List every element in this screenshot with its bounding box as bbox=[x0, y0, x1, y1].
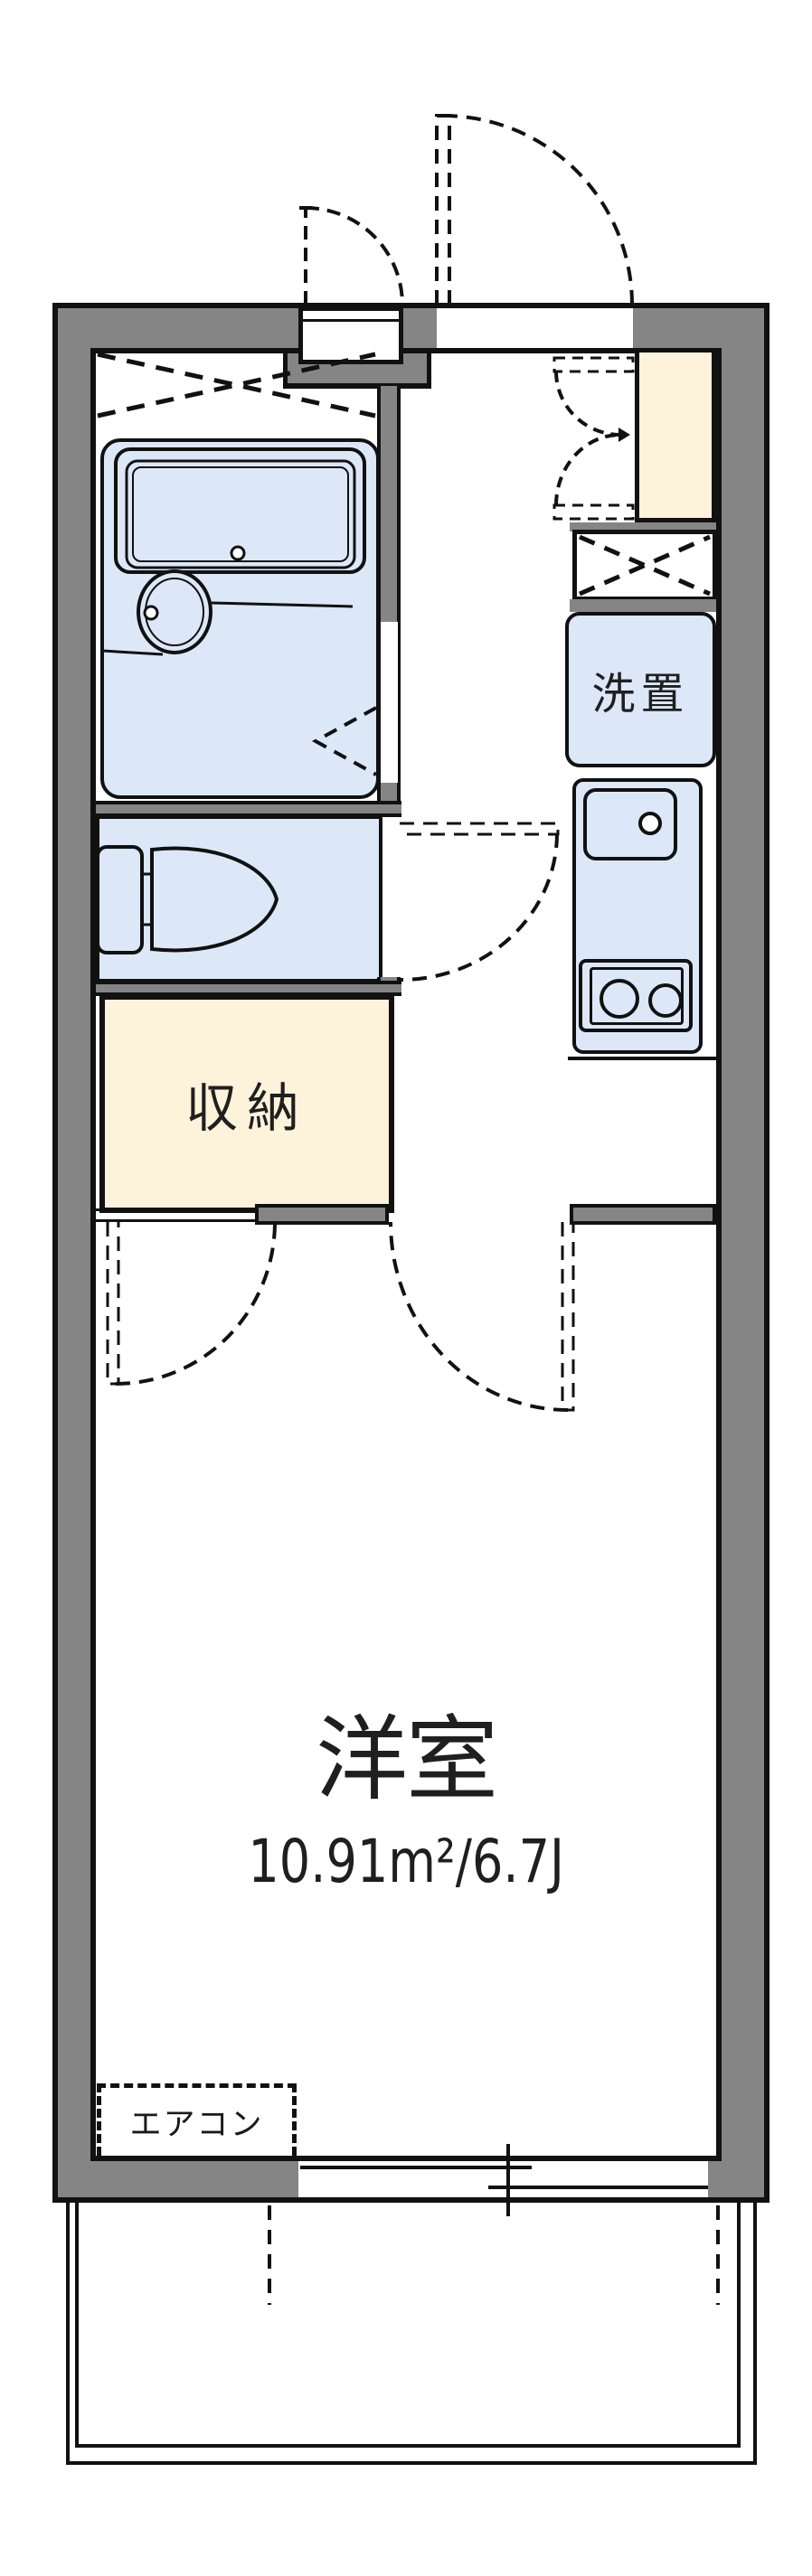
toilet-tank bbox=[98, 847, 142, 953]
plan-symbols-layer bbox=[0, 0, 812, 2576]
basin-faucet bbox=[145, 606, 157, 619]
main-room-door-right bbox=[391, 1222, 573, 1410]
bathroom-x-mark bbox=[98, 354, 375, 416]
entry-door-arc bbox=[437, 116, 632, 305]
main-room-door-left bbox=[108, 1222, 275, 1384]
toilet-bowl bbox=[152, 849, 277, 951]
fridge-x-mark bbox=[580, 537, 710, 594]
floor-plan: 洗置 収納 洋室 10.91m²/6.7J エアコン bbox=[0, 0, 812, 2576]
toilet-door-arc bbox=[400, 823, 558, 980]
shoe-door-arrow bbox=[618, 428, 630, 442]
tub-drain bbox=[231, 547, 244, 559]
balcony-dashed-lines bbox=[269, 2205, 718, 2305]
porch-door-arc bbox=[299, 208, 402, 305]
